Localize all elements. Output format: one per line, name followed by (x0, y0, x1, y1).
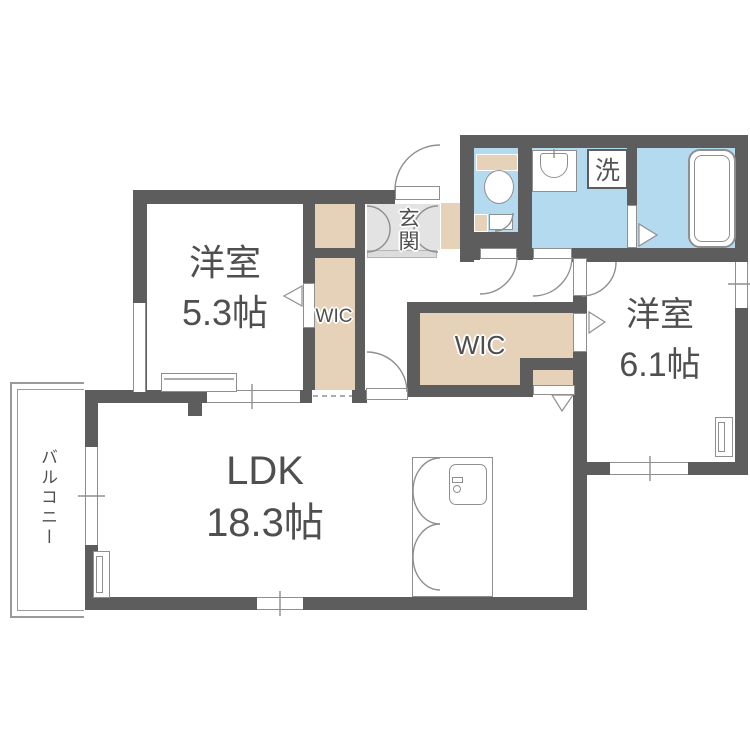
entrance-door-arc (395, 145, 440, 190)
window-balcony-sliding (85, 447, 98, 545)
entrance-door-leaf (395, 186, 440, 200)
ac-unit-ldk-inner (96, 556, 103, 593)
wall-segment (735, 135, 748, 262)
open-boundary-dashed (312, 390, 352, 403)
wall-segment (460, 135, 748, 148)
hall-ldk-door-arc (367, 352, 407, 392)
shoe-cabinet (440, 202, 461, 250)
wall-pillar (188, 403, 202, 416)
wall-segment (133, 190, 395, 204)
hall-ldk-door-leaf (366, 388, 408, 400)
small-closet-floor (533, 370, 575, 385)
bedroom1-size: 5.3帖 (140, 288, 310, 338)
bedroom1-counter (161, 373, 237, 392)
small-closet-folding-door-triangle (552, 395, 573, 411)
wic1-label: WIC (306, 306, 362, 328)
wall-segment (520, 370, 533, 385)
wall-segment (474, 232, 520, 248)
floor-plan: 洗 (0, 0, 750, 750)
washroom-door-arc (533, 257, 572, 296)
wall-segment (575, 462, 610, 475)
bath-door-leaf (627, 205, 637, 248)
toilet-inner-door-leaf (489, 214, 513, 230)
wall-segment (517, 248, 533, 260)
bedroom2-label: 洋室 6.1帖 (580, 290, 740, 390)
wall-segment (312, 248, 355, 258)
toilet-bowl (484, 170, 514, 204)
small-closet-door-leaf (533, 385, 575, 395)
genkan-label: 玄関 (392, 200, 422, 260)
ldk-size: 18.3帖 (120, 497, 410, 549)
bedroom1-name: 洋室 (140, 238, 310, 288)
wall-segment (407, 302, 587, 313)
wall-segment (627, 148, 637, 205)
toilet-door-leaf (480, 248, 517, 259)
wall-segment (407, 302, 420, 397)
kitchen-faucet (452, 477, 463, 483)
window-bedroom2-bottom (610, 462, 688, 475)
washing-machine-label: 洗 (595, 151, 620, 187)
ldk-label: LDK 18.3帖 (120, 445, 410, 549)
closet-floor-top (312, 204, 355, 248)
bedroom1-label: 洋室 5.3帖 (140, 238, 310, 338)
washing-machine-space: 洗 (587, 149, 628, 189)
wall-segment (460, 248, 480, 260)
wall-segment (688, 462, 748, 475)
balcony-label: バルコニー (35, 418, 60, 578)
bedroom2-size: 6.1帖 (580, 340, 740, 390)
wall-segment (518, 148, 532, 248)
wall-segment (355, 204, 365, 390)
washroom-door-leaf (533, 248, 572, 259)
wall-segment (85, 390, 98, 447)
kitchen-faucet-knob (453, 485, 461, 493)
bedroom2-name: 洋室 (580, 290, 740, 340)
toilet-door-jamb (474, 214, 488, 232)
wall-segment (303, 597, 585, 610)
wall-segment (85, 597, 257, 610)
ldk-name: LDK (120, 445, 410, 497)
wall-segment (587, 248, 748, 262)
toilet-tank (476, 154, 518, 171)
wall-segment (407, 385, 533, 397)
ac-unit-bedroom2-inner (718, 422, 725, 452)
toilet-door-arc (480, 257, 517, 294)
wall-segment (460, 135, 474, 262)
wall-segment (300, 390, 312, 403)
bathtub-inner (694, 155, 730, 242)
window-ldk-bottom (257, 597, 303, 610)
wic2-label: WIC (420, 330, 540, 361)
wall-segment (352, 390, 367, 403)
